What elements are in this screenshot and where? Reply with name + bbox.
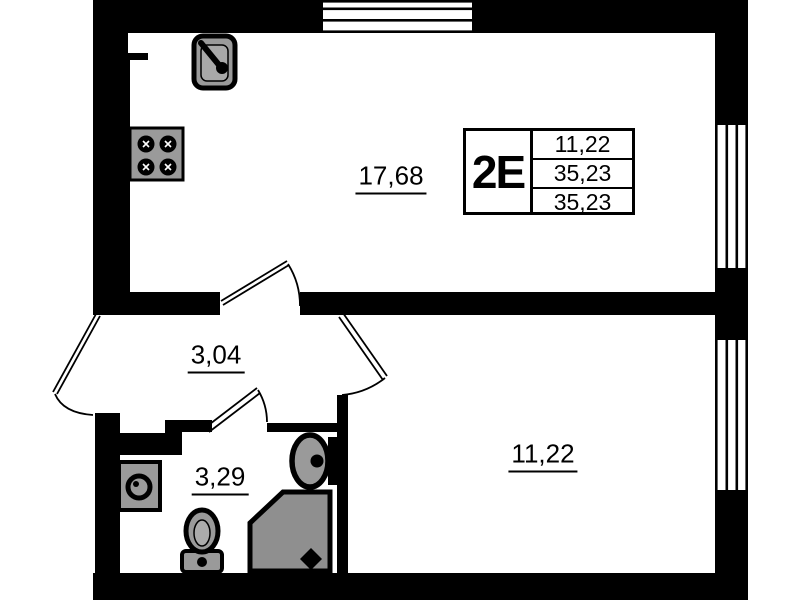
top-wall-left-segment: [93, 0, 323, 33]
window-top-opening: [323, 0, 472, 33]
bathroom-door-swing-arc: [258, 390, 267, 422]
unit-area-rows: 11,22 35,23 35,23: [533, 131, 632, 212]
bottom-wall: [93, 573, 748, 600]
window-right-upper-opening: [715, 125, 748, 268]
unit-overall-area-value: 35,23: [533, 187, 632, 216]
window-right-upper: [715, 125, 748, 268]
living-room-door-leaf: [221, 261, 287, 301]
bathroom-door-leaf: [206, 388, 257, 427]
kitchen-sink-icon: [194, 36, 235, 88]
room-area-label-hallway: 3,04: [188, 340, 245, 371]
mid-wall-left-segment: [93, 292, 220, 315]
bathroom-top-wall-left: [118, 433, 182, 455]
stove-icon: [130, 128, 183, 180]
bedroom-door-swing-arc: [342, 378, 385, 395]
living-kitchen-area-value: 17,68: [355, 161, 426, 195]
living-room-door-swing-arc: [288, 264, 300, 306]
entrance-door-leaf: [53, 314, 96, 392]
room-area-label-bathroom: 3,29: [192, 462, 249, 493]
top-wall-right-segment: [472, 0, 748, 33]
bathroom-top-wall-right: [267, 423, 337, 432]
left-wall-upper: [93, 33, 130, 315]
walls: [93, 0, 748, 600]
right-wall-middle: [715, 268, 748, 340]
bedroom-door: [339, 313, 387, 395]
room-area-label-bedroom: 11,22: [508, 439, 577, 470]
bedroom-area-value: 11,22: [508, 439, 577, 473]
unit-total-area-value: 35,23: [533, 158, 632, 187]
unit-type-label: 2E: [466, 131, 533, 212]
window-right-lower: [715, 340, 748, 490]
bathroom-sink-icon: [292, 435, 338, 487]
mid-wall-right-segment: [300, 292, 717, 315]
bedroom-door-leaf: [339, 317, 383, 380]
washing-machine-icon: [119, 462, 160, 510]
shower-icon: [250, 492, 330, 571]
left-wall-lower: [95, 413, 120, 600]
toilet-icon: [182, 510, 222, 572]
living-room-door: [221, 261, 300, 306]
bathroom-door: [206, 388, 267, 432]
bedroom-bathroom-wall: [337, 395, 348, 575]
entrance-door-swing-arc: [55, 394, 93, 415]
corner-duct-notch: [128, 33, 148, 53]
unit-info-card: 2E 11,22 35,23 35,23: [463, 128, 635, 215]
entrance-door: [53, 314, 100, 415]
window-top: [323, 0, 472, 33]
right-wall-upper: [715, 33, 748, 125]
hallway-area-value: 3,04: [188, 340, 245, 374]
bathroom-area-value: 3,29: [192, 462, 249, 496]
unit-living-area-value: 11,22: [533, 131, 632, 158]
floor-plan: 17,68 3,04 3,29 11,22 2E 11,22 35,23 35,…: [0, 0, 799, 600]
window-right-lower-opening: [715, 340, 748, 490]
room-area-label-living-kitchen: 17,68: [355, 161, 426, 192]
floor-plan-drawing: [0, 0, 799, 600]
